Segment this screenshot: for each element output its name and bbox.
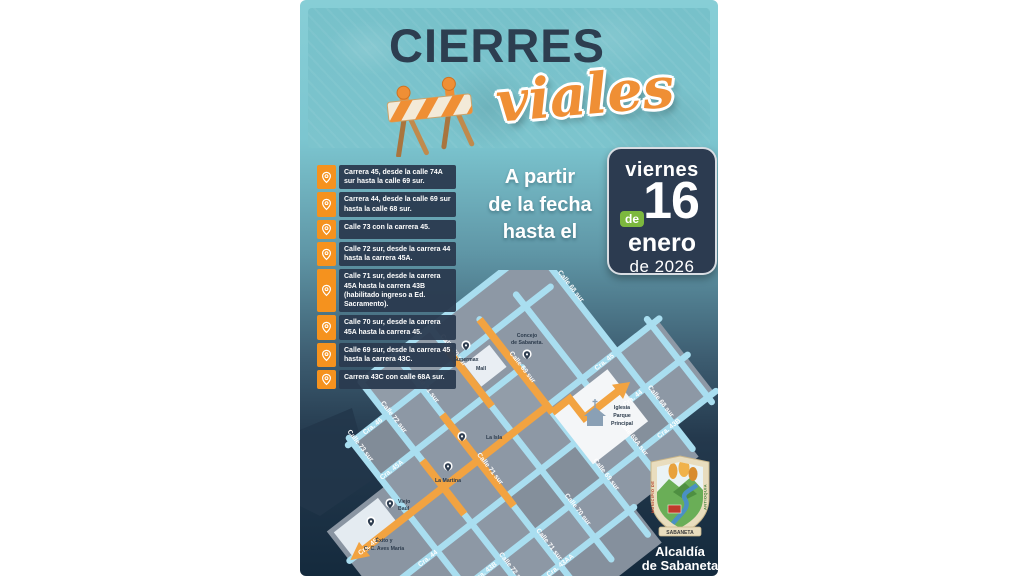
closure-text: Carrera 45, desde la calle 74A sur hasta…	[339, 165, 456, 189]
date-card: viernes 16 de enero de 2026	[607, 147, 717, 275]
closure-item: Calle 73 con la carrera 45.	[317, 220, 456, 239]
poi-label: C. C. Aves María	[364, 546, 404, 552]
map-pin-icon	[317, 242, 336, 266]
closure-text: Carrera 44, desde la calle 69 sur hasta …	[339, 192, 456, 216]
closure-text: Carrera 43C con calle 68A sur.	[339, 370, 456, 389]
crest-bottom-text: SABANETA	[666, 530, 694, 536]
closure-item: Calle 71 sur, desde la carrera 45A hasta…	[317, 269, 456, 312]
intro-line: A partir	[475, 164, 605, 192]
closure-text: Calle 73 con la carrera 45.	[339, 220, 456, 239]
map-pin-icon	[317, 192, 336, 216]
sabaneta-crest: MUNICIPIO DE ANTIOQUIA SABANETA	[650, 456, 709, 536]
org-name-line2: de Sabaneta	[642, 558, 718, 573]
poi-label: Éxito y	[375, 536, 392, 544]
poi-label: Parque	[613, 413, 631, 419]
screenshot-canvas: CIERRES	[0, 0, 1024, 576]
crest-right-text: ANTIOQUIA	[703, 484, 708, 510]
date-de-badge: de	[620, 211, 644, 227]
closure-item: Calle 70 sur, desde la carrera 45A hasta…	[317, 315, 456, 339]
intro-line: hasta el	[475, 219, 605, 247]
closure-item: Calle 72 sur, desde la carrera 44 hasta …	[317, 242, 456, 266]
closure-text: Calle 70 sur, desde la carrera 45A hasta…	[339, 315, 456, 339]
closure-text: Calle 71 sur, desde la carrera 45A hasta…	[339, 269, 456, 312]
map-pin-icon	[317, 370, 336, 389]
poi-label: Principal	[611, 421, 633, 427]
closure-text: Calle 72 sur, desde la carrera 44 hasta …	[339, 242, 456, 266]
map-pin-icon	[317, 315, 336, 339]
closure-item: Carrera 43C con calle 68A sur.	[317, 370, 456, 389]
map-pin-icon	[317, 220, 336, 239]
poi-label: La Isla	[486, 435, 502, 441]
poi-label: La Martina	[435, 478, 461, 484]
closure-item: Carrera 44, desde la calle 69 sur hasta …	[317, 192, 456, 216]
poi-label: Concejo	[517, 333, 537, 339]
poi-label: Viejo	[398, 499, 410, 505]
map-pin-icon	[317, 269, 336, 312]
poi-label: Mall	[476, 366, 487, 372]
poi-label: Iglesia	[614, 405, 630, 411]
closure-list: Carrera 45, desde la calle 74A sur hasta…	[317, 165, 456, 392]
poi-label: Supermax	[453, 357, 478, 363]
org-name-line1: Alcaldía	[655, 544, 706, 559]
closure-text: Calle 69 sur, desde la carrera 45 hasta …	[339, 343, 456, 367]
intro-line: de la fecha	[475, 192, 605, 220]
date-day: 16	[639, 171, 703, 231]
poi-label: de Sabaneta.	[511, 340, 544, 346]
crest-left-text: MUNICIPIO DE	[650, 481, 655, 514]
map-pin-icon	[317, 165, 336, 189]
effective-date-text: A partir de la fecha hasta el	[475, 164, 605, 247]
road-closures-poster: CIERRES	[300, 0, 718, 576]
closure-item: Calle 69 sur, desde la carrera 45 hasta …	[317, 343, 456, 367]
closure-item: Carrera 45, desde la calle 74A sur hasta…	[317, 165, 456, 189]
map-pin-icon	[317, 343, 336, 367]
map-dark-wedge	[300, 408, 372, 516]
poi-label: Baúl	[398, 506, 410, 512]
date-year: de 2026	[609, 257, 715, 277]
date-month: enero	[609, 229, 715, 258]
